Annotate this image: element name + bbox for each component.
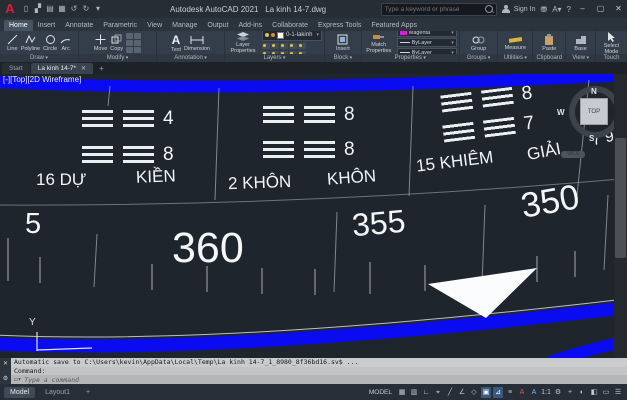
- panel-label-view[interactable]: View: [566, 54, 594, 62]
- panel-label-modify[interactable]: Modify: [79, 54, 156, 62]
- tab-annotate[interactable]: Annotate: [60, 20, 98, 31]
- file-tab-bar: Start La kinh 14-7*✕ +: [0, 62, 627, 74]
- degree-label-360: 360: [172, 224, 244, 273]
- viewcube-north[interactable]: N: [591, 87, 597, 96]
- insert-button[interactable]: Insert: [336, 34, 350, 52]
- group-button[interactable]: Group: [471, 35, 486, 52]
- panel-touch: Select Mode Touch: [596, 31, 627, 62]
- ucs-y-label: Y: [29, 317, 36, 328]
- tab-express-tools[interactable]: Express Tools: [313, 20, 366, 31]
- layout1-tab[interactable]: Layout1: [39, 387, 76, 398]
- command-prompt-line: Command:: [11, 367, 627, 376]
- text-icon: A: [172, 34, 181, 46]
- trigram: [263, 141, 294, 158]
- measure-icon: [509, 35, 522, 44]
- command-chevron-icon: ▭▾: [14, 376, 21, 383]
- hexagram-value: 8: [163, 146, 174, 163]
- panel-label-annotation[interactable]: Annotation: [157, 54, 224, 62]
- workspace-gear-icon[interactable]: ⚙: [553, 387, 563, 398]
- trigram: [82, 110, 113, 127]
- viewport-controls[interactable]: [-][Top][2D Wireframe]: [3, 75, 81, 84]
- panel-label-layers[interactable]: Layers: [225, 54, 324, 62]
- wcs-button[interactable]: WCS: [561, 151, 585, 158]
- circle-icon: [45, 34, 56, 45]
- move-button[interactable]: Move: [94, 34, 107, 52]
- polar-tracking-icon[interactable]: ∠: [457, 387, 467, 398]
- isodraft-icon[interactable]: ◇: [469, 387, 479, 398]
- magenta-swatch-icon: [400, 31, 407, 35]
- document-title: La kinh 14-7.dwg: [265, 5, 326, 14]
- degree-label-5: 5: [25, 208, 41, 241]
- window-title: Autodesk AutoCAD 2021 La kinh 14-7.dwg: [170, 5, 326, 14]
- layer-color-chip: [277, 32, 284, 39]
- lineweight-line-icon: [400, 52, 410, 53]
- quick-access-toolbar: ▯▞▤▦↺↻▾: [21, 2, 103, 16]
- panel-label-groups[interactable]: Groups: [460, 54, 498, 62]
- match-properties-icon: [373, 32, 384, 41]
- current-layer-name: 0-1-lakinh: [286, 32, 312, 38]
- line-button[interactable]: Line: [7, 34, 18, 52]
- copy-button[interactable]: Copy: [110, 34, 123, 52]
- hexagram-row: 8: [82, 146, 174, 163]
- tab-manage[interactable]: Manage: [167, 20, 202, 31]
- top-blue-arc: [0, 75, 627, 87]
- osnap-icon[interactable]: ▣: [481, 387, 491, 398]
- panel-groups: Group Groups: [460, 31, 499, 62]
- trigram: [123, 146, 154, 163]
- panel-block: Insert Block: [325, 31, 362, 62]
- linetype-dropdown[interactable]: ByLayer: [397, 38, 457, 47]
- select-mode-button[interactable]: Select Mode: [598, 32, 625, 55]
- qat-dropdown-icon[interactable]: ▾: [93, 2, 103, 16]
- inference-icon[interactable]: ∟: [421, 387, 431, 398]
- hexagram-value: 8: [344, 141, 355, 158]
- measure-button[interactable]: Measure: [505, 35, 526, 51]
- modify-tool-grid[interactable]: [126, 33, 141, 53]
- layer-properties-button[interactable]: Layer Properties: [227, 32, 259, 54]
- degree-label-355: 355: [350, 203, 406, 245]
- sign-in-button[interactable]: Sign In: [514, 6, 536, 13]
- maximize-button[interactable]: ▢: [594, 0, 607, 18]
- copy-icon: [111, 34, 122, 45]
- panel-label-draw[interactable]: Draw: [0, 54, 78, 62]
- arc-icon: [60, 34, 71, 45]
- sector-label: 2 KHÔN: [228, 172, 292, 194]
- paste-button[interactable]: Paste: [542, 34, 556, 52]
- command-history-line: Automatic save to C:\Users\kevin\AppData…: [11, 358, 627, 367]
- viewcube-top-face[interactable]: TOP: [580, 98, 608, 125]
- ribbon: Line Polyline Circle Arc Draw Move: [0, 31, 627, 62]
- layer-on-bulb-icon: [265, 33, 269, 37]
- ribbon-tab-bar: Home Insert Annotate Parametric View Man…: [0, 18, 627, 31]
- linetype-icon: [400, 42, 410, 43]
- polyline-button[interactable]: Polyline: [21, 34, 40, 52]
- drawing-area[interactable]: [-][Top][2D Wireframe] 4 8 16 DỰ KIỀN 8 …: [0, 74, 627, 358]
- hardware-acceleration-icon[interactable]: ◧: [589, 387, 599, 398]
- search-box[interactable]: [381, 3, 497, 16]
- user-icon[interactable]: [502, 5, 509, 13]
- vertical-scrollbar[interactable]: [614, 74, 627, 358]
- paste-icon: [544, 34, 554, 45]
- panel-layers: Layer Properties 0-1-lakinh Layers: [225, 31, 325, 62]
- app-title: Autodesk AutoCAD 2021: [170, 5, 259, 14]
- hexagram-row: 8: [263, 106, 355, 123]
- panel-label-properties[interactable]: Properties: [362, 54, 459, 62]
- lineweight-icon[interactable]: ≡: [505, 387, 515, 398]
- hexagram-value: 4: [163, 110, 174, 127]
- line-icon: [7, 34, 18, 45]
- sector-label: KHÔN: [326, 166, 376, 189]
- trigram: [263, 106, 294, 123]
- grid-icon[interactable]: ▦: [397, 387, 407, 398]
- command-tools-icon[interactable]: ⚙: [3, 375, 8, 382]
- autocad-logo-icon[interactable]: A: [2, 0, 18, 18]
- minimize-button[interactable]: –: [576, 0, 589, 18]
- move-icon: [95, 34, 106, 45]
- annotation-monitor-icon[interactable]: +: [565, 387, 575, 398]
- command-placeholder: Type a command: [24, 376, 79, 384]
- save-icon[interactable]: ▤: [45, 2, 55, 16]
- match-properties-button[interactable]: Match Properties: [364, 32, 394, 54]
- help-icon[interactable]: ?: [567, 5, 571, 14]
- tab-insert[interactable]: Insert: [33, 20, 61, 31]
- autodesk-account-icon[interactable]: A▾: [552, 5, 561, 14]
- hexagram-row: 4: [82, 110, 174, 127]
- insert-block-icon: [337, 34, 348, 45]
- tab-view[interactable]: View: [142, 20, 167, 31]
- dynamic-input-icon[interactable]: ⌖: [433, 387, 443, 398]
- annotation-visibility-icon[interactable]: A: [517, 387, 527, 398]
- trigram: [123, 110, 154, 127]
- layer-dropdown[interactable]: 0-1-lakinh: [262, 31, 322, 41]
- arc-button[interactable]: Arc: [60, 34, 71, 52]
- open-folder-icon[interactable]: ▞: [33, 2, 43, 16]
- tab-parametric[interactable]: Parametric: [98, 20, 142, 31]
- file-tab-document[interactable]: La kinh 14-7*✕: [31, 63, 93, 74]
- panel-modify: Move Copy Modify: [79, 31, 157, 62]
- panel-label-block[interactable]: Block: [325, 54, 361, 62]
- tab-add-ins[interactable]: Add-ins: [233, 20, 267, 31]
- base-button[interactable]: Base: [574, 35, 587, 52]
- title-bar: A ▯▞▤▦↺↻▾ Autodesk AutoCAD 2021 La kinh …: [0, 0, 627, 18]
- text-button[interactable]: A Text: [171, 34, 181, 53]
- scrollbar-thumb[interactable]: [615, 138, 626, 258]
- statusbar-icons: ▦▥∟⌖╱∠◇▣⊿≡AA1:1⚙+◐◧▭☰: [397, 387, 623, 398]
- viewcube-west[interactable]: W: [557, 108, 565, 117]
- new-drawing-tab-button[interactable]: +: [94, 63, 109, 74]
- polyline-icon: [25, 34, 36, 45]
- app-store-cart-icon[interactable]: ⛃: [540, 5, 547, 14]
- trigram: [304, 106, 335, 123]
- sector-label: 16 DỰ: [36, 170, 86, 190]
- bottom-blue-arc: [0, 307, 627, 346]
- layer-properties-icon: [237, 32, 250, 41]
- clean-screen-icon[interactable]: ▭: [601, 387, 611, 398]
- tab-home[interactable]: Home: [4, 20, 33, 31]
- command-close-icon[interactable]: ✕: [3, 360, 8, 367]
- autoscale-icon[interactable]: A: [529, 387, 539, 398]
- model-tab[interactable]: Model: [4, 387, 35, 398]
- panel-clipboard: Paste Clipboard: [533, 31, 566, 62]
- hexagram-value: 8: [521, 84, 534, 102]
- command-window: ✕ ⚙ Automatic save to C:\Users\kevin\App…: [0, 358, 627, 384]
- dimension-button[interactable]: Dimension: [184, 34, 210, 52]
- panel-label-utilities[interactable]: Utilities: [498, 54, 532, 62]
- hexagram-row: 8: [263, 141, 355, 158]
- ortho-icon[interactable]: ╱: [445, 387, 455, 398]
- tab-output[interactable]: Output: [202, 20, 233, 31]
- undo-icon[interactable]: ↺: [69, 2, 79, 16]
- file-tab-start[interactable]: Start: [2, 63, 30, 74]
- tab-collaborate[interactable]: Collaborate: [267, 20, 313, 31]
- panel-properties: Match Properties Magenta ByLayer ByLayer…: [362, 31, 460, 62]
- panel-label-clipboard[interactable]: Clipboard: [533, 54, 565, 62]
- circle-button[interactable]: Circle: [43, 34, 57, 52]
- cursor-icon: [607, 32, 616, 42]
- trigram: [304, 141, 335, 158]
- group-icon: [472, 35, 485, 45]
- panel-utilities: Measure Utilities: [498, 31, 533, 62]
- osnap-tracking-icon[interactable]: ⊿: [493, 387, 503, 398]
- panel-view: Base View: [566, 31, 595, 62]
- hexagram-value: 8: [344, 106, 355, 123]
- isolate-icon[interactable]: ◐: [577, 387, 587, 398]
- new-file-icon[interactable]: ▯: [21, 2, 31, 16]
- status-bar: Model Layout1 + MODEL ▦▥∟⌖╱∠◇▣⊿≡AA1:1⚙+◐…: [0, 384, 627, 400]
- model-space-label[interactable]: MODEL: [369, 389, 392, 396]
- search-input[interactable]: [385, 6, 482, 13]
- panel-annotation: A Text Dimension Annotation: [157, 31, 225, 62]
- layer-tools-row-1[interactable]: [262, 43, 322, 49]
- command-input[interactable]: ▭▾ Type a command: [11, 375, 627, 384]
- panel-label-touch[interactable]: Touch: [596, 54, 627, 62]
- trigram: [82, 146, 113, 163]
- layer-thaw-icon: [271, 33, 275, 37]
- file-tab-close-icon[interactable]: ✕: [81, 66, 86, 72]
- panel-draw: Line Polyline Circle Arc Draw: [0, 31, 79, 62]
- hexagram-value: 7: [523, 114, 536, 132]
- new-layout-button[interactable]: +: [80, 387, 96, 398]
- base-view-icon: [575, 35, 587, 45]
- close-button[interactable]: ✕: [612, 0, 625, 18]
- object-color-dropdown[interactable]: Magenta: [397, 31, 457, 37]
- viewcube-south[interactable]: S: [589, 134, 594, 143]
- redo-icon[interactable]: ↻: [81, 2, 91, 16]
- search-icon[interactable]: [485, 5, 493, 13]
- annotation-scale-icon[interactable]: 1:1: [541, 387, 551, 398]
- dimension-icon: [190, 34, 204, 45]
- snap-icon[interactable]: ▥: [409, 387, 419, 398]
- sector-label: KIỀN: [136, 166, 176, 187]
- plot-icon[interactable]: ▦: [57, 2, 67, 16]
- tab-featured-apps[interactable]: Featured Apps: [366, 20, 422, 31]
- customization-icon[interactable]: ☰: [613, 387, 623, 398]
